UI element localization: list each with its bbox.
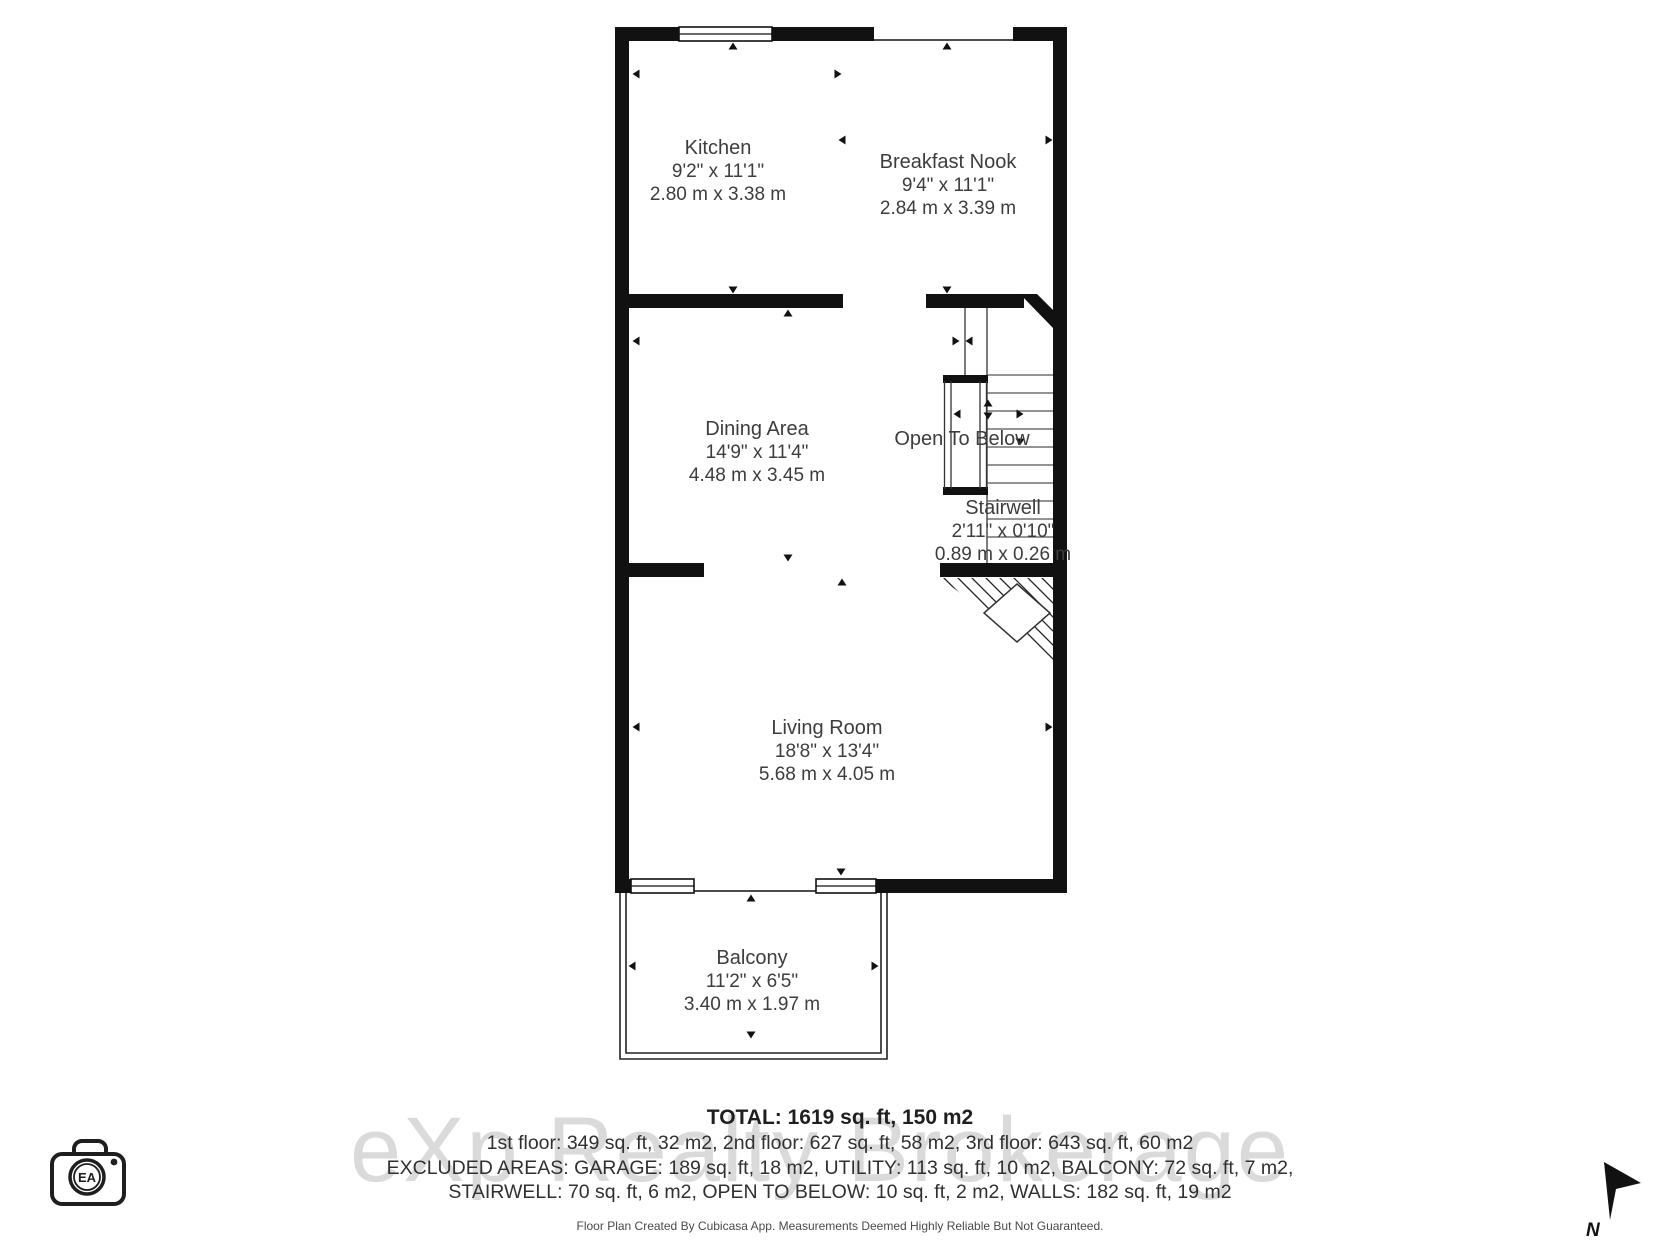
room-label-living-room: Living Room 18'8" x 13'4" 5.68 m x 4.05 … <box>759 717 895 786</box>
room-name: Balcony <box>684 947 820 970</box>
room-name: Kitchen <box>650 137 786 160</box>
summary-total: TOTAL: 1619 sq. ft, 150 m2 <box>0 1106 1680 1130</box>
summary-excluded-line1: EXCLUDED AREAS: GARAGE: 189 sq. ft, 18 m… <box>0 1157 1680 1180</box>
room-dim-imperial: 9'2" x 11'1" <box>650 160 786 183</box>
room-dim-metric: 5.68 m x 4.05 m <box>759 763 895 786</box>
room-dim-metric: 2.80 m x 3.38 m <box>650 183 786 206</box>
floor-plan-page: eXp Realty Brokerage <box>0 0 1680 1260</box>
room-dim-metric: 3.40 m x 1.97 m <box>684 993 820 1016</box>
room-name: Stairwell <box>935 497 1071 520</box>
wall-corner-chamfer <box>1020 294 1053 328</box>
room-name: Living Room <box>759 717 895 740</box>
room-dim-imperial: 14'9" x 11'4" <box>689 441 825 464</box>
room-label-kitchen: Kitchen 9'2" x 11'1" 2.80 m x 3.38 m <box>650 137 786 206</box>
room-dim-metric: 0.89 m x 0.26 m <box>935 543 1071 566</box>
living-room-window-right <box>816 879 876 893</box>
room-dim-metric: 2.84 m x 3.39 m <box>880 197 1017 220</box>
open-to-below-label: Open To Below <box>894 428 1029 451</box>
room-name: Breakfast Nook <box>880 151 1017 174</box>
stair-break-symbol <box>984 584 1050 642</box>
room-label-balcony: Balcony 11'2" x 6'5" 3.40 m x 1.97 m <box>684 947 820 1016</box>
room-dim-imperial: 11'2" x 6'5" <box>684 970 820 993</box>
room-label-stairwell: Stairwell 2'11" x 0'10" 0.89 m x 0.26 m <box>935 497 1071 566</box>
summary-floors: 1st floor: 349 sq. ft, 32 m2, 2nd floor:… <box>0 1132 1680 1155</box>
room-dim-imperial: 9'4" x 11'1" <box>880 174 1017 197</box>
room-dim-imperial: 18'8" x 13'4" <box>759 740 895 763</box>
living-room-window-left <box>631 879 694 893</box>
summary-excluded-line2: STAIRWELL: 70 sq. ft, 6 m2, OPEN TO BELO… <box>0 1181 1680 1204</box>
room-dim-imperial: 2'11" x 0'10" <box>935 520 1071 543</box>
room-label-dining-area: Dining Area 14'9" x 11'4" 4.48 m x 3.45 … <box>689 418 825 487</box>
room-name: Dining Area <box>689 418 825 441</box>
kitchen-window <box>679 27 772 41</box>
floor-plan-drawing: EA N <box>0 0 1680 1260</box>
room-dim-metric: 4.48 m x 3.45 m <box>689 464 825 487</box>
room-label-breakfast-nook: Breakfast Nook 9'4" x 11'1" 2.84 m x 3.3… <box>880 151 1017 220</box>
summary-disclaimer: Floor Plan Created By Cubicasa App. Meas… <box>0 1219 1680 1233</box>
